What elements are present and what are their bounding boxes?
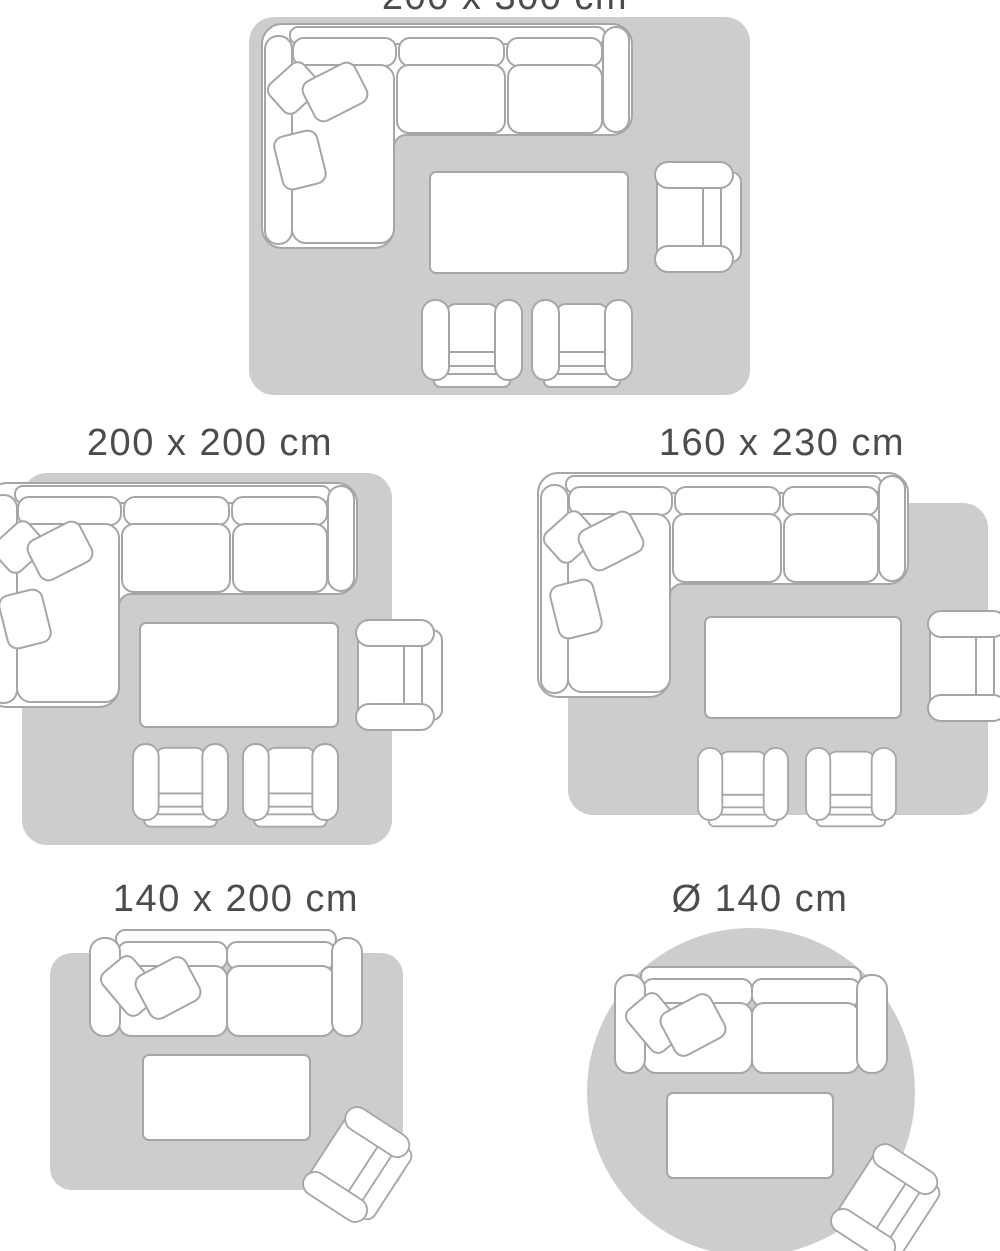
armchair (655, 162, 741, 272)
club-chair (422, 300, 522, 387)
size-label-200x200: 200 x 200 cm (87, 422, 333, 464)
coffee-table (143, 1055, 310, 1140)
size-label-round-140: Ø 140 cm (672, 878, 849, 920)
rug-size-guide-canvas: 200 x 300 cm 200 x 200 cm 160 x 230 cm 1… (0, 0, 1000, 1251)
diagram-round-140: Ø 140 cm (587, 878, 948, 1251)
diagram-200x200: 200 x 200 cm (0, 422, 442, 845)
diagram-200x300: 200 x 300 cm (249, 0, 750, 395)
size-label-200x300: 200 x 300 cm (382, 0, 628, 18)
coffee-table (140, 623, 338, 727)
diagram-140x200: 140 x 200 cm (50, 878, 420, 1230)
club-chair (532, 300, 632, 387)
club-chair (806, 748, 896, 826)
armchair (356, 620, 442, 730)
coffee-table (430, 172, 628, 273)
coffee-table (667, 1093, 833, 1178)
club-chair (243, 744, 338, 827)
size-label-160x230: 160 x 230 cm (659, 422, 905, 464)
club-chair (133, 744, 228, 827)
coffee-table (705, 617, 901, 718)
size-label-140x200: 140 x 200 cm (113, 878, 359, 920)
rug-size-guide: 200 x 300 cm 200 x 200 cm 160 x 230 cm 1… (0, 0, 1000, 1251)
two-seat-sofa (615, 967, 887, 1073)
armchair (928, 611, 1000, 721)
two-seat-sofa (90, 930, 362, 1036)
diagram-160x230: 160 x 230 cm (538, 422, 1000, 826)
club-chair (698, 748, 788, 826)
